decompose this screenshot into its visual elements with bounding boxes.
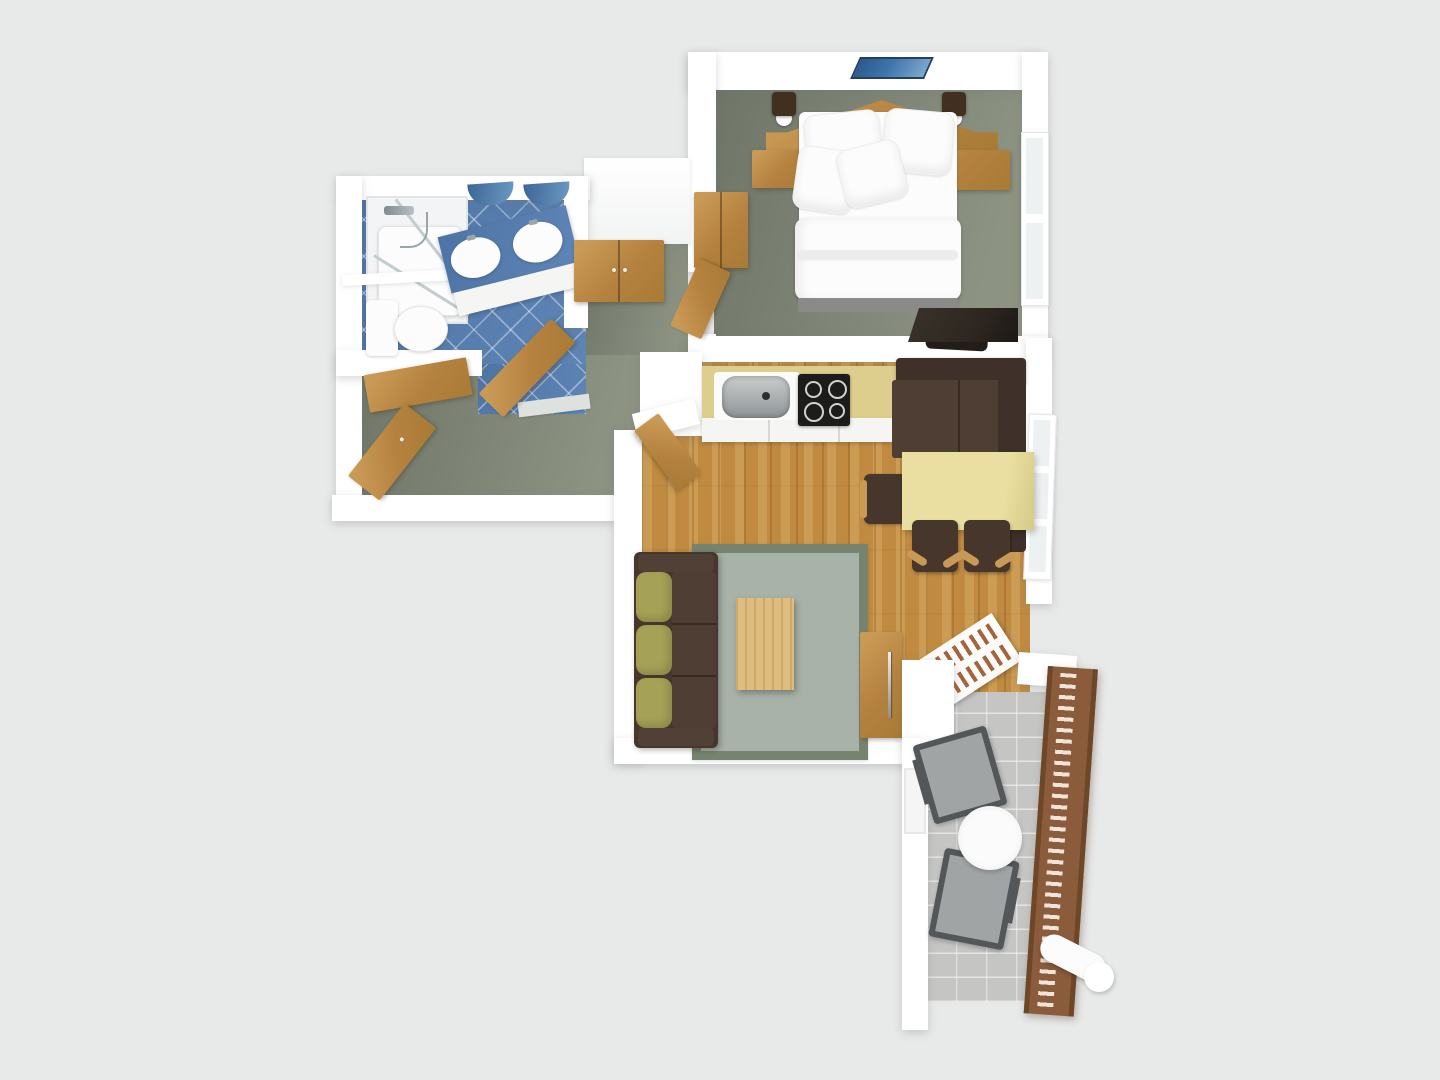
cooktop-burner-1: [805, 381, 822, 398]
hall-wardrobe-knob-1: [612, 268, 616, 272]
bedroom-window-pane-top: [1026, 138, 1043, 214]
entrance-door-knob: [399, 437, 405, 443]
desk: [908, 308, 1018, 342]
bedroom-wardrobe: [694, 192, 748, 268]
service-wall-block: [584, 158, 690, 244]
wall-lamp-left-shade: [772, 92, 796, 116]
corner-bench-seam: [958, 380, 960, 458]
hall-wardrobe: [574, 240, 664, 302]
sideboard-handle: [888, 652, 891, 718]
dining-window-pane-1: [1032, 420, 1051, 467]
hall-wardrobe-knob-2: [623, 268, 627, 272]
wall-lamp-left: [770, 92, 798, 126]
bedroom-wardrobe-seam: [720, 192, 722, 268]
coffee-table: [736, 598, 794, 690]
sofa-seat-seam-1: [672, 623, 716, 625]
cooktop: [798, 374, 850, 426]
sideboard: [860, 632, 902, 738]
dining-window-pane-3: [1028, 526, 1047, 573]
double-bed: [795, 110, 961, 314]
toilet-bowl: [394, 306, 448, 352]
bed-duvet-fold: [798, 250, 958, 259]
bathroom-left-wall: [336, 176, 362, 506]
dining-chair-left-frame: [860, 480, 867, 518]
sofa-armrest-bottom: [638, 728, 714, 746]
sofa-cushion-2: [636, 625, 672, 675]
floor-plan-scene: [0, 0, 1440, 1080]
dining-chair-1: [912, 520, 958, 572]
kitchen-sink: [722, 376, 790, 418]
balcony-round-table: [958, 806, 1022, 870]
cooktop-burner-2: [828, 380, 847, 399]
rolled-mat-end-cap: [1084, 962, 1114, 992]
dining-chair-2: [964, 520, 1010, 572]
kitchen-sink-drain: [762, 392, 770, 400]
cooktop-burner-3: [804, 402, 824, 422]
bedroom-window: [1021, 132, 1049, 306]
sofa-seat: [672, 572, 716, 728]
dining-chair-left: [864, 474, 906, 524]
wall-picture: [850, 57, 934, 79]
balcony-corner-wall-left: [902, 660, 954, 742]
hall-bottom-wall: [332, 495, 618, 521]
sofa-armrest-top: [638, 554, 714, 572]
kitchen-cabinet-seam-1: [768, 418, 770, 442]
dining-table: [902, 452, 1034, 530]
cooktop-burner-4: [829, 403, 845, 419]
bedroom-window-pane-bottom: [1026, 223, 1043, 299]
hall-wardrobe-seam-1: [618, 240, 620, 302]
kitchen-counter: [702, 366, 906, 444]
bed-duvet: [795, 218, 961, 300]
sofa-cushion-1: [636, 572, 672, 622]
sofa: [634, 552, 718, 748]
sofa-cushion-3: [636, 678, 672, 728]
sofa-seat-seam-2: [672, 675, 716, 677]
